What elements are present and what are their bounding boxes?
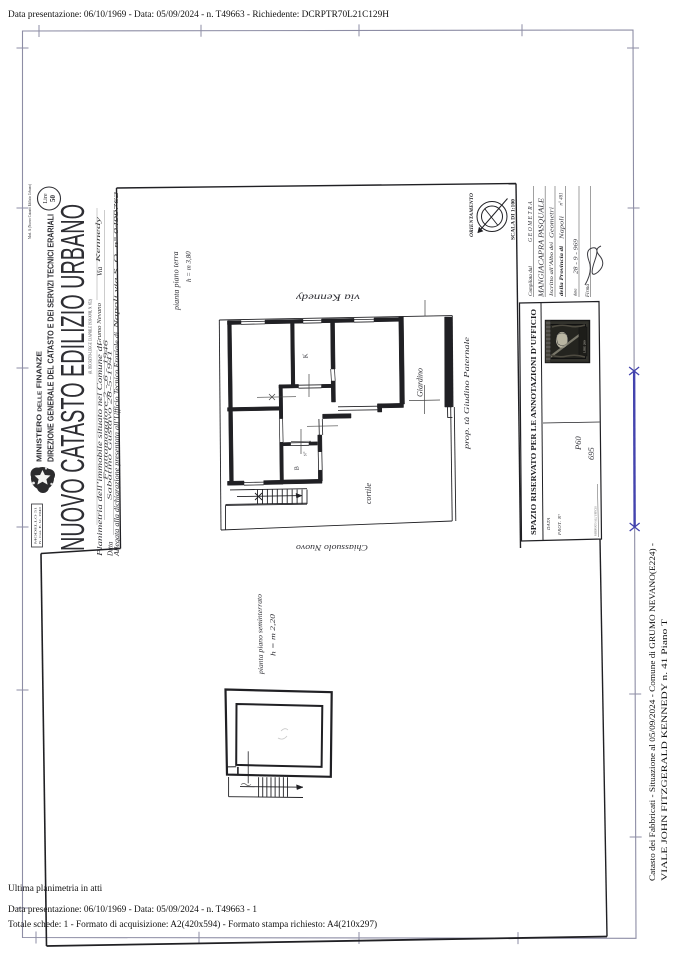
svg-text:Allegata alla dichiarazione pr: Allegata alla dichiarazione presentata a… <box>114 332 121 557</box>
svg-text:Ultima planimetria in atti: Ultima planimetria in atti <box>8 884 103 894</box>
svg-text:pianta piano terra: pianta piano terra <box>171 251 181 311</box>
svg-text:Iscritto all’Albo dei: Iscritto all’Albo dei <box>550 241 555 297</box>
svg-text:PROT. N°: PROT. N° <box>557 513 562 536</box>
svg-text:Chiassuolo Nuovo: Chiassuolo Nuovo <box>296 543 368 553</box>
svg-text:28 - 9 - 969: 28 - 9 - 969 <box>573 239 580 274</box>
svg-text:MODELLO 51: MODELLO 51 <box>34 506 38 544</box>
svg-text:Mod. A (Nuovo Catasto Edilizio: Mod. A (Nuovo Catasto Edilizio Urbano) <box>27 184 32 239</box>
svg-text:Grumo Nevano: Grumo Nevano <box>96 302 103 345</box>
svg-text:Compilata dal: Compilata dal <box>528 266 534 296</box>
svg-text:via Kennedy: via Kennedy <box>296 293 360 303</box>
svg-text:h = m 2,20: h = m 2,20 <box>269 613 278 656</box>
svg-text:MANGIACAPRA PASQUALE: MANGIACAPRA PASQUALE <box>538 197 546 298</box>
svg-text:P60: P60 <box>573 436 583 451</box>
svg-text:RISERVATO ALL’UFFICIO: RISERVATO ALL’UFFICIO <box>595 506 598 536</box>
svg-text:Kennedy: Kennedy <box>95 217 102 264</box>
svg-text:pianta piano seminterrato: pianta piano seminterrato <box>256 594 265 676</box>
svg-text:n° 481: n° 481 <box>558 192 565 205</box>
svg-text:Data presentazione: 06/10/1969: Data presentazione: 06/10/1969 - Data: 0… <box>8 10 389 20</box>
svg-text:SPAZIO RISERVATO PER LE ANNOTA: SPAZIO RISERVATO PER LE ANNOTAZIONI D’UF… <box>529 309 538 535</box>
svg-text:NUOVO CATASTO EDILIZIO URBANO: NUOVO CATASTO EDILIZIO URBANO <box>54 204 91 551</box>
svg-text:della Provincia di: della Provincia di <box>559 245 565 296</box>
svg-text:G E O M E T R A: G E O M E T R A <box>528 201 534 242</box>
svg-text:data: data <box>573 289 578 296</box>
svg-text:Giardino: Giardino <box>416 368 425 397</box>
svg-text:N°: N° <box>302 451 308 458</box>
svg-text:Sabatino Gustavo 28-5-1941: Sabatino Gustavo 28-5-1941 <box>107 350 114 500</box>
svg-text:SCALA DI 1:100: SCALA DI 1:100 <box>511 199 517 240</box>
svg-text:Catasto dei Fabbricati - Situa: Catasto dei Fabbricati - Situazione al 0… <box>647 543 657 881</box>
svg-text:695: 695 <box>586 447 596 460</box>
svg-text:Totale schede: 1 - Formato di: Totale schede: 1 - Formato di acquisizio… <box>8 919 377 930</box>
svg-text:DATA: DATA <box>546 517 551 531</box>
svg-text:Napoli: Napoli <box>560 216 566 241</box>
svg-text:prop. tà Giudino Paternale: prop. tà Giudino Paternale <box>463 337 471 450</box>
svg-text:Firma: Firma <box>585 284 591 298</box>
svg-text:LIRE 200: LIRE 200 <box>583 340 587 353</box>
svg-text:VIALE JOHN FITZGERALD KENNEDY: VIALE JOHN FITZGERALD KENNEDY n. 41 Pian… <box>659 618 669 881</box>
svg-text:50: 50 <box>49 195 57 203</box>
svg-text:Napoli via S. O. n° 0499762: Napoli via S. O. n° 0499762 <box>113 192 120 330</box>
svg-text:ORIENTAMENTO: ORIENTAMENTO <box>469 193 475 237</box>
svg-text:cortile: cortile <box>364 483 373 504</box>
svg-text:h = m 3,80: h = m 3,80 <box>184 251 193 282</box>
svg-text:Geometri: Geometri <box>550 206 556 238</box>
svg-text:N. Cat. E. U. 1940: N. Cat. E. U. 1940 <box>38 506 42 544</box>
